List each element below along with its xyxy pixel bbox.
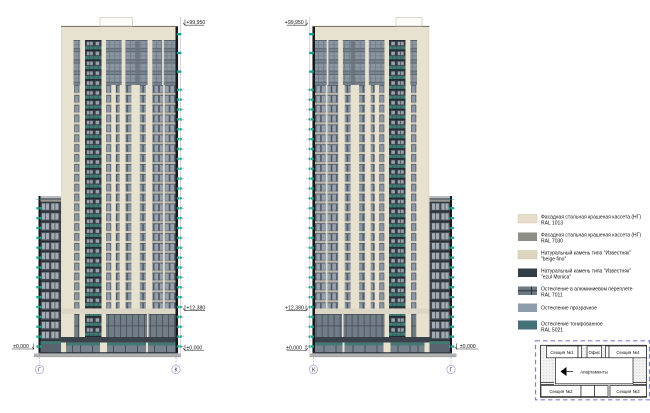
svg-text:Секция №2: Секция №2 (549, 389, 573, 394)
svg-text:±0,000: ±0,000 (286, 346, 302, 352)
svg-text:±0,000: ±0,000 (460, 344, 476, 350)
svg-text:Апартаменты: Апартаменты (580, 369, 608, 374)
svg-text:+12,380: +12,380 (186, 306, 205, 312)
svg-text:+99,950: +99,950 (186, 20, 205, 26)
svg-text:Натуральный камень типа "Извес: Натуральный камень типа "Известняк" (541, 268, 631, 275)
svg-text:"ezul Monica": "ezul Monica" (541, 275, 571, 281)
svg-text:Остекление прозрачное: Остекление прозрачное (541, 306, 597, 312)
svg-text:Натуральный камень типа "Извес: Натуральный камень типа "Известняк" (541, 250, 631, 257)
svg-text:±0,000: ±0,000 (13, 344, 29, 350)
svg-text:RAL 1013: RAL 1013 (541, 221, 563, 227)
svg-text:Секция №4: Секция №4 (616, 350, 640, 355)
svg-text:"beige fino": "beige fino" (541, 257, 566, 263)
svg-text:Г: Г (38, 368, 41, 374)
svg-text:Секция №1: Секция №1 (550, 350, 574, 355)
svg-text:±0,000: ±0,000 (186, 346, 202, 352)
svg-text:RAL 7030: RAL 7030 (541, 239, 563, 245)
svg-text:RAL 5021: RAL 5021 (541, 328, 563, 334)
svg-text:RAL 7011: RAL 7011 (541, 293, 563, 299)
svg-text:Офис: Офис (588, 350, 600, 355)
svg-text:+12,380: +12,380 (285, 306, 304, 312)
svg-text:Г: Г (450, 368, 453, 374)
svg-text:К: К (174, 368, 177, 374)
svg-text:+99,950: +99,950 (285, 20, 304, 26)
svg-text:Секция №3: Секция №3 (616, 389, 640, 394)
svg-text:К: К (312, 368, 315, 374)
